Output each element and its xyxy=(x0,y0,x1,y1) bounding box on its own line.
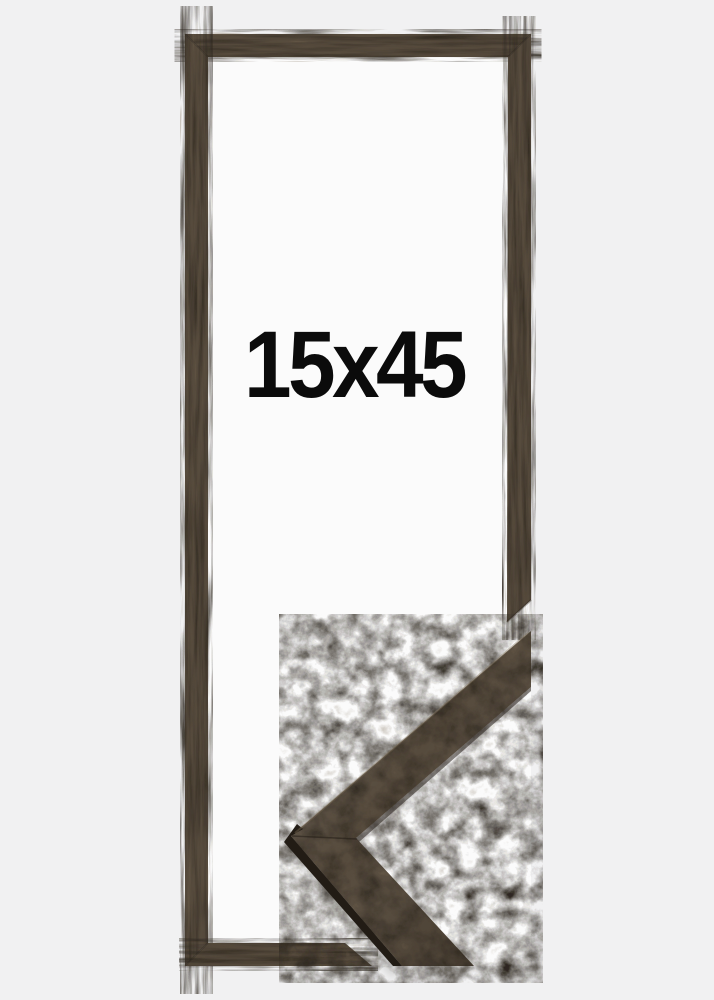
frame-product-photo: 15x45 xyxy=(0,0,714,1000)
frame-bottom-bar xyxy=(185,943,372,966)
frame-left-bar xyxy=(185,34,208,966)
frame-right-bar xyxy=(507,34,531,622)
frame-top-bar xyxy=(185,34,531,57)
frame-product-image: 15x45 xyxy=(0,0,714,1000)
size-label: 15x45 xyxy=(244,312,466,418)
